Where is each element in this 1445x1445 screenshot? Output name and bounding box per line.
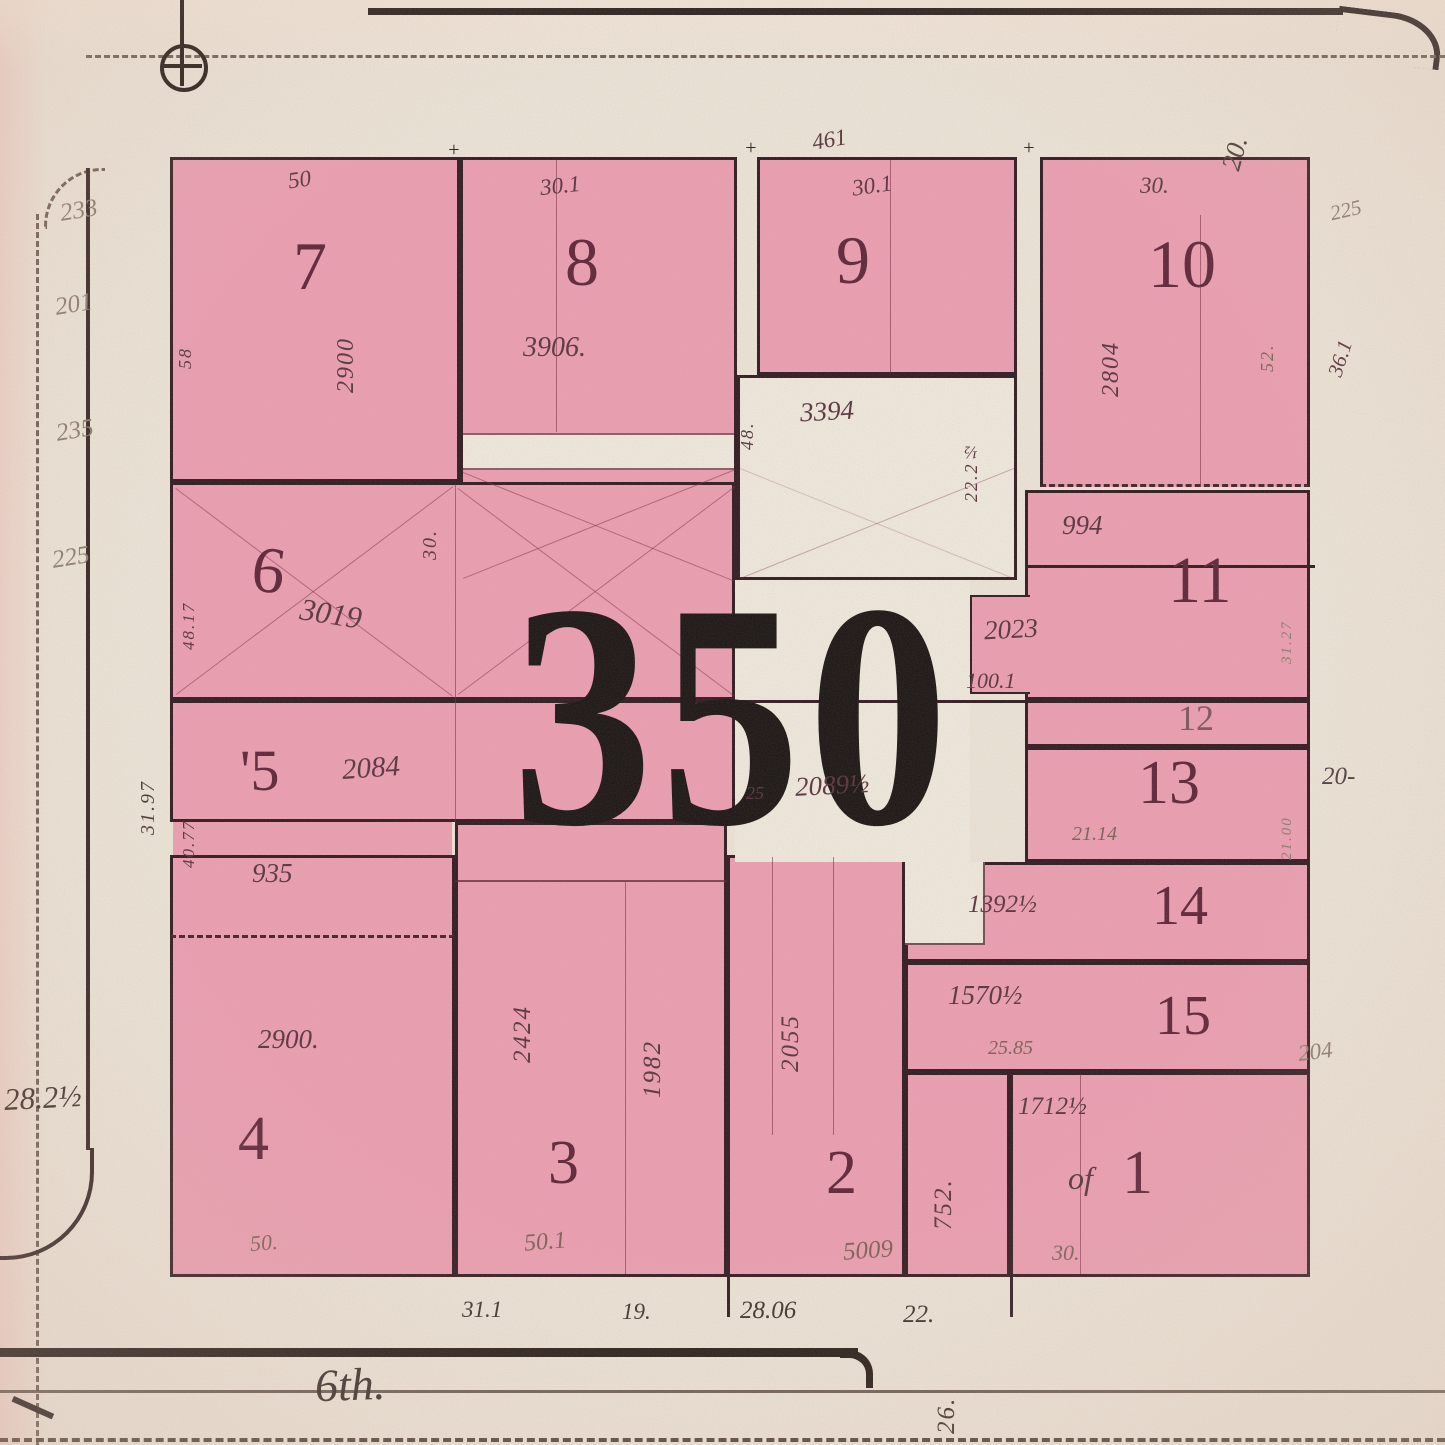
- lot-9-number: 9: [836, 226, 870, 294]
- lot-7-side: 58: [176, 314, 194, 369]
- margin-left-235: 235: [54, 415, 95, 446]
- lot-10-building: 2804: [1099, 275, 1123, 397]
- hydrant-stem: [180, 0, 184, 46]
- survey-mark-c: +: [1022, 138, 1036, 158]
- lot-8-divider: [556, 160, 557, 432]
- lot-10-depth: 36.1: [1325, 338, 1356, 379]
- street-line-left-curve: [0, 1148, 94, 1260]
- lot-11-building: 2023: [983, 615, 1038, 645]
- parcel-lot-4: [170, 935, 455, 1277]
- lot-10-side: 52.: [1258, 298, 1276, 372]
- lot-7-building: 2900: [334, 283, 358, 393]
- margin-bottom-311: 31.1: [462, 1298, 502, 1321]
- tick-x1010: [1010, 1277, 1013, 1317]
- lot-4-frontage: 50.: [249, 1231, 278, 1255]
- lot-10-frontage: 30.: [1140, 174, 1169, 197]
- strip-935-top-line: [170, 855, 455, 858]
- lot-13-below: 21.14: [1072, 824, 1117, 844]
- lot-8-number: 8: [565, 228, 599, 296]
- street-label: 6th.: [314, 1361, 386, 1409]
- margin-left-2825: 28.2½: [3, 1080, 82, 1115]
- lot-3-number: 3: [548, 1132, 579, 1194]
- lot-5-building: 2084: [341, 752, 401, 785]
- lot-3-frontage: 50.1: [523, 1228, 567, 1256]
- margin-bottom-19: 19.: [622, 1300, 651, 1323]
- top-dim-461: 461: [810, 125, 848, 154]
- strip-935-label: 935: [252, 860, 293, 887]
- lot-14-building: 1392½: [968, 892, 1037, 917]
- parcel-lot-2: [727, 855, 905, 1277]
- street-line-bottom-2: [0, 1390, 1445, 1393]
- right-chain-a: 31.27: [1280, 552, 1295, 664]
- lot-11-dim: 100.1: [966, 670, 1016, 692]
- lot-11-upper: 994: [1062, 512, 1103, 539]
- curb-dashed-bottom: [0, 1438, 1445, 1442]
- lot-9-frontage: 30.1: [851, 171, 894, 199]
- open-strip-lot-8: [463, 433, 734, 470]
- curb-dashed-left: [36, 214, 39, 1445]
- margin-left-225: 225: [50, 542, 91, 573]
- street-line-bottom-hook: [840, 1350, 873, 1388]
- lot-8-building: 3906.: [523, 334, 586, 362]
- margin-left-233: 233: [58, 195, 99, 226]
- lot-15-number: 15: [1155, 988, 1211, 1044]
- lot-4-building: 2900.: [258, 1026, 319, 1053]
- margin-right-204: 204: [1297, 1038, 1334, 1065]
- margin-right-20dash: 20-: [1322, 764, 1355, 789]
- parcel-lot-15: [905, 962, 1310, 1072]
- hydrant-icon-cross-h: [162, 64, 202, 68]
- lot-3-building-a: 2424: [510, 908, 535, 1063]
- margin-bottom-22: 22.: [903, 1302, 934, 1327]
- parcel-strip-752: [905, 1072, 1010, 1277]
- lot-8-frontage: 30.1: [539, 172, 581, 199]
- parcel-gap-5: [173, 822, 452, 858]
- lot-2-strip-right: [833, 857, 834, 1135]
- lot-5-number: '5: [240, 742, 279, 800]
- lot-11-number: 11: [1168, 548, 1232, 614]
- lot-1-frontage: 30.: [1052, 1242, 1080, 1264]
- lot-3-building-b: 1982: [640, 958, 665, 1098]
- margin-bottom-2806: 28.06: [740, 1298, 796, 1323]
- margin-left-201: 201: [53, 289, 94, 320]
- parcel-strip-935: [170, 855, 455, 935]
- lot-7-number: 7: [293, 232, 327, 300]
- open-3394-left: 48.: [738, 390, 756, 450]
- lot-12-number: 12: [1178, 700, 1214, 736]
- lot-5-depth: 40.77: [180, 768, 197, 868]
- open-3394-label: 3394: [799, 397, 854, 427]
- tick-x727: [727, 1277, 730, 1317]
- survey-mark-a: +: [447, 140, 461, 160]
- street-line-bottom: [0, 1348, 858, 1357]
- lot-1-prefix: of: [1068, 1162, 1093, 1194]
- margin-left-3197: 31.97: [138, 690, 158, 835]
- lot-6-depth: 48.17: [180, 550, 197, 650]
- lot-13-number: 13: [1138, 752, 1200, 814]
- lot-14-number: 14: [1152, 878, 1208, 934]
- lot-7-frontage: 50: [287, 167, 313, 193]
- margin-right-225: 225: [1328, 197, 1363, 225]
- lot-6-building: 3019: [298, 593, 364, 633]
- hydrant-icon: [160, 44, 208, 92]
- lot-6-divider: [455, 484, 456, 822]
- lot-2-strip-left: [772, 857, 773, 1135]
- lot-10-number: 10: [1148, 230, 1216, 298]
- lot-15-building: 1570½: [948, 982, 1022, 1009]
- street-line-top: [368, 8, 1343, 15]
- lot-15-below: 25.85: [988, 1038, 1033, 1058]
- lot-4-number: 4: [238, 1108, 269, 1170]
- parcel-lot-12: [1025, 700, 1310, 747]
- right-chain-b: 21.00: [1280, 748, 1295, 860]
- lot-1-number: 1: [1122, 1142, 1153, 1204]
- lot-1-building: 1712½: [1018, 1094, 1087, 1119]
- parcel-lot-7: [170, 157, 460, 482]
- lot-2-building: 2055: [778, 932, 803, 1072]
- lot-2-number: 2: [826, 1142, 857, 1204]
- lot-3-divider: [625, 882, 626, 1274]
- curb-dashed-top: [86, 55, 1445, 58]
- courtyard-left-dim: 25: [746, 784, 764, 802]
- block-number: 350: [512, 592, 956, 842]
- sanborn-map-block-350: 350 7 8 9 10 11 12 13 14 15 1 of 2 3 4 '…: [0, 0, 1445, 1445]
- lot-6-notch-dim: 30.: [420, 496, 440, 560]
- strip-752-label: 752.: [931, 1105, 956, 1230]
- lot-2-bottom: 5009: [842, 1236, 894, 1264]
- courtyard-label: 2089½: [794, 770, 870, 801]
- survey-mark-b: +: [744, 138, 758, 158]
- open-3394-right: 22.2½: [962, 382, 980, 502]
- margin-bottom-26: 26.: [934, 1334, 959, 1434]
